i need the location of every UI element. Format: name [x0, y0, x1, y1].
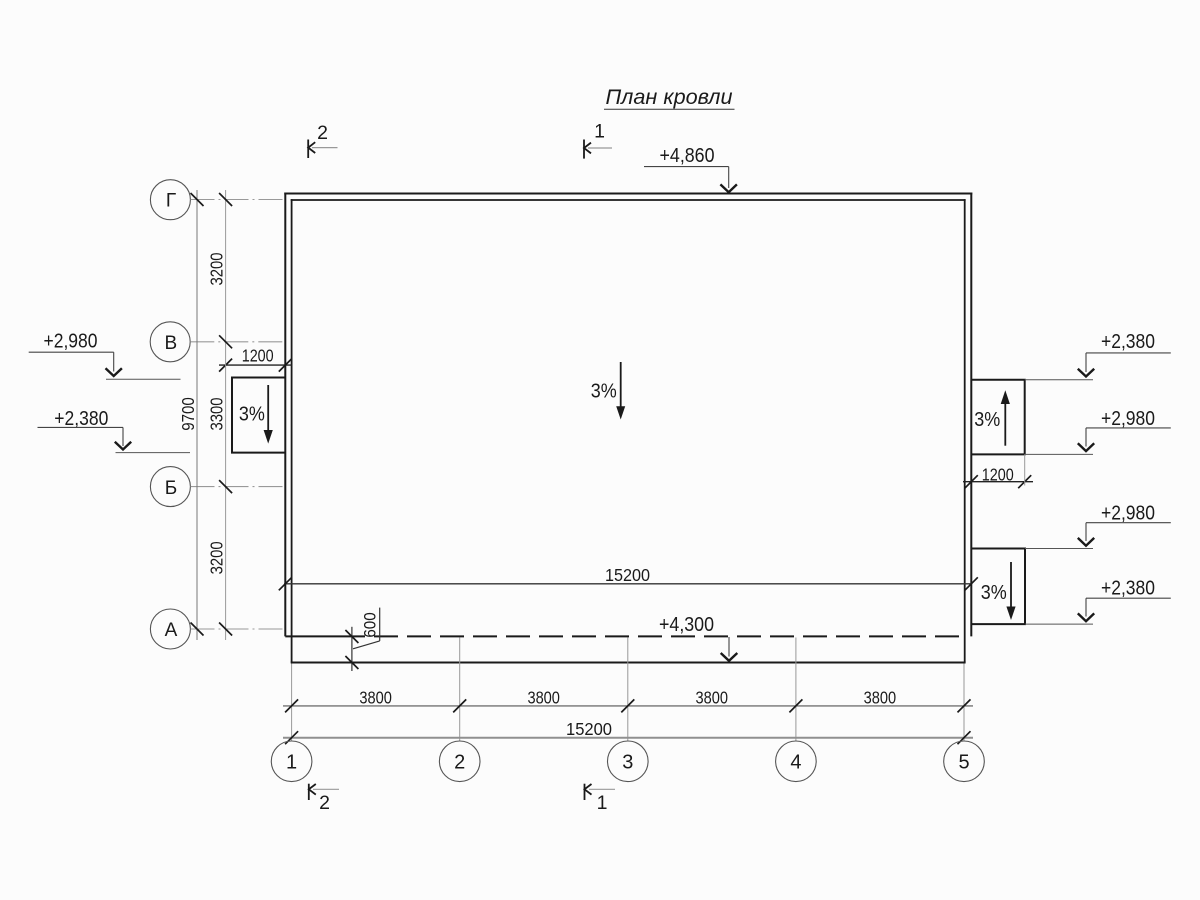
svg-text:15200: 15200 — [566, 719, 612, 739]
svg-text:15200: 15200 — [605, 565, 650, 585]
svg-text:3200: 3200 — [207, 253, 227, 286]
svg-text:1: 1 — [594, 121, 605, 143]
svg-text:+2,380: +2,380 — [54, 408, 108, 430]
svg-text:+2,380: +2,380 — [1101, 578, 1155, 600]
svg-text:3800: 3800 — [864, 688, 897, 708]
svg-text:3%: 3% — [974, 409, 1000, 431]
svg-text:+2,380: +2,380 — [1101, 331, 1155, 353]
svg-text:3: 3 — [622, 752, 633, 774]
svg-text:2: 2 — [454, 752, 465, 774]
svg-text:3%: 3% — [981, 582, 1007, 604]
svg-text:1200: 1200 — [242, 345, 274, 365]
svg-text:3200: 3200 — [207, 541, 227, 574]
svg-text:3%: 3% — [591, 381, 617, 403]
svg-text:В: В — [164, 333, 177, 354]
svg-text:+4,860: +4,860 — [660, 145, 715, 167]
svg-text:9700: 9700 — [178, 397, 198, 431]
svg-text:1: 1 — [286, 752, 297, 774]
svg-text:1200: 1200 — [982, 464, 1014, 484]
svg-text:+2,980: +2,980 — [44, 331, 98, 353]
svg-text:1: 1 — [597, 792, 608, 814]
svg-text:План кровли: План кровли — [606, 86, 733, 109]
svg-text:3800: 3800 — [696, 688, 729, 708]
svg-text:4: 4 — [790, 752, 801, 774]
svg-text:+4,300: +4,300 — [659, 614, 714, 636]
svg-text:Г: Г — [166, 191, 176, 212]
svg-text:2: 2 — [319, 792, 330, 814]
svg-text:3%: 3% — [239, 403, 265, 425]
svg-text:А: А — [165, 620, 178, 641]
svg-text:5: 5 — [958, 752, 969, 774]
svg-text:Б: Б — [165, 478, 177, 499]
svg-text:3800: 3800 — [359, 688, 392, 708]
svg-text:3800: 3800 — [527, 688, 560, 708]
svg-text:+2,980: +2,980 — [1101, 408, 1155, 430]
svg-text:600: 600 — [360, 612, 379, 637]
svg-text:+2,980: +2,980 — [1101, 503, 1155, 525]
svg-text:2: 2 — [317, 122, 328, 144]
svg-text:3300: 3300 — [207, 398, 227, 431]
